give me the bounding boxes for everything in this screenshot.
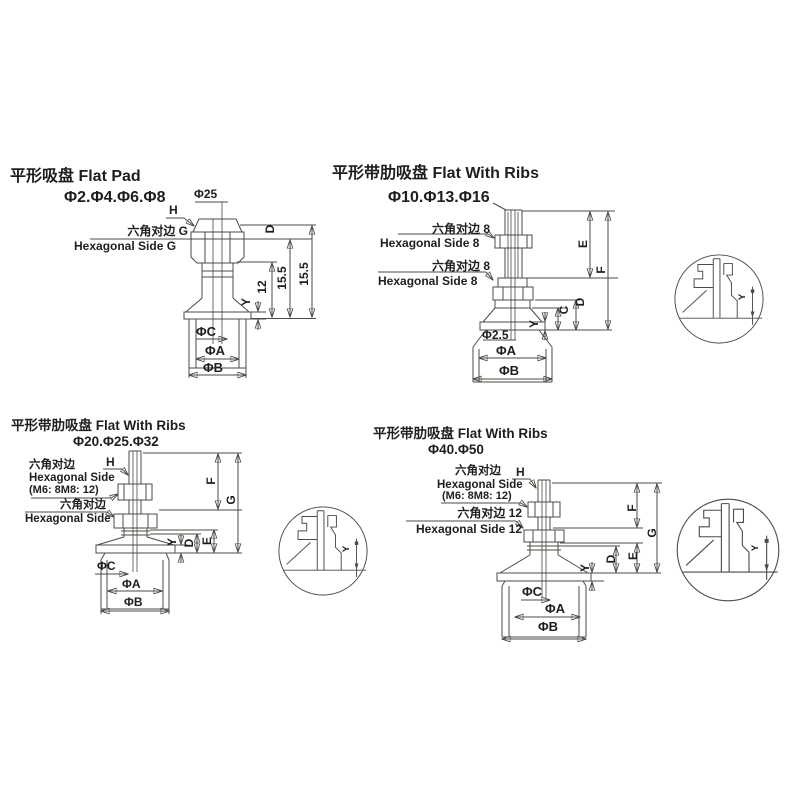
dim-label-e: E xyxy=(625,548,641,564)
drawing-title: 平形带肋吸盘 Flat With Ribs xyxy=(11,419,186,433)
dim-label-d: D xyxy=(572,295,588,309)
label-h: H xyxy=(106,456,115,469)
flat-ribs-small-linework xyxy=(370,195,622,390)
label-h: H xyxy=(169,204,178,217)
label-hex-cn: 六角对边 G xyxy=(96,225,188,238)
dim-label-d: D xyxy=(603,552,619,566)
label-dia-b: ΦB xyxy=(203,361,223,375)
label-hex2-cn: 六角对边 xyxy=(40,499,106,511)
label-hex1-note: (M6: 8M8: 12) xyxy=(442,491,512,503)
label-stem-diameter: Φ25 xyxy=(194,188,217,201)
detail-dim-label-y: Y xyxy=(339,542,355,556)
drawing-sizes: Φ2.Φ4.Φ6.Φ8 xyxy=(64,190,165,207)
detail-bubble-large xyxy=(675,497,781,603)
label-dia-a: ΦA xyxy=(205,344,225,358)
detail-dim-label-y: Y xyxy=(748,541,764,555)
label-dia-a: ΦA xyxy=(122,578,141,591)
label-hex2-cn: 六角对边 8 xyxy=(410,260,490,273)
dim-label-d: D xyxy=(181,536,197,550)
label-dia-c: ΦC xyxy=(97,560,116,573)
label-hex1-en: Hexagonal Side xyxy=(29,472,115,484)
label-dia-a: ΦA xyxy=(545,602,565,616)
dim-label-y: Y xyxy=(238,294,254,310)
label-hex2-en: Hexagonal Side 8 xyxy=(378,275,477,288)
label-dia-c: ΦC xyxy=(196,325,216,339)
label-hex2-en: Hexagonal Side xyxy=(25,513,111,525)
label-hex1-cn: 六角对边 8 xyxy=(410,223,490,236)
dim-label-f: F xyxy=(624,500,640,516)
dim-label-f: F xyxy=(203,473,219,489)
drawing-sizes: Φ10.Φ13.Φ16 xyxy=(388,190,490,207)
drawing-sizes: Φ40.Φ50 xyxy=(428,443,484,457)
dim-label-y: Y xyxy=(164,535,180,549)
dim-label-e: E xyxy=(199,533,215,549)
dim-label-d: D xyxy=(262,220,278,238)
dim-label-e: E xyxy=(575,236,591,252)
label-dia-b: ΦB xyxy=(499,364,519,378)
dim-label-g: G xyxy=(644,525,660,541)
dim-label-y: Y xyxy=(526,317,542,331)
dim-label-c: C xyxy=(556,303,572,317)
label-hex2-cn: 六角对边 12 xyxy=(442,507,522,520)
detail-bubble-medium xyxy=(277,505,369,597)
drawing-title: 平形带肋吸盘 Flat With Ribs xyxy=(373,427,548,441)
technical-drawing-sheet: 平形吸盘 Flat Pad Φ2.Φ4.Φ6.Φ8 Φ25 H 六角对边 G H… xyxy=(0,0,800,800)
label-dia-c: ΦC xyxy=(522,585,542,599)
label-h: H xyxy=(516,466,525,479)
dim-label-y: Y xyxy=(577,561,593,575)
label-hex1-en: Hexagonal Side 8 xyxy=(380,237,479,250)
detail-dim-label-y: Y xyxy=(735,290,751,304)
dim-label-155-outer: 15.5 xyxy=(296,260,312,288)
dim-label-12: 12 xyxy=(254,276,270,298)
label-dia-a: ΦA xyxy=(496,344,516,358)
dim-label-f: F xyxy=(593,262,609,278)
label-dia-hole: Φ2.5 xyxy=(482,329,509,342)
dim-label-155-inner: 15.5 xyxy=(274,264,290,292)
drawing-sizes: Φ20.Φ25.Φ32 xyxy=(73,435,159,449)
dim-label-g: G xyxy=(223,492,239,508)
label-hex1-cn: 六角对边 xyxy=(29,459,75,471)
label-hex2-en: Hexagonal Side 12 xyxy=(402,523,522,536)
detail-bubble-small xyxy=(673,253,765,345)
drawing-title: 平形吸盘 Flat Pad xyxy=(10,169,141,186)
label-dia-b: ΦB xyxy=(538,620,558,634)
label-hex1-note: (M6: 8M8: 12) xyxy=(29,485,99,497)
drawing-title: 平形带肋吸盘 Flat With Ribs xyxy=(332,166,539,183)
label-hex-en: Hexagonal Side G xyxy=(74,240,176,253)
label-dia-b: ΦB xyxy=(124,596,143,609)
label-hex1-cn: 六角对边 xyxy=(455,465,501,477)
